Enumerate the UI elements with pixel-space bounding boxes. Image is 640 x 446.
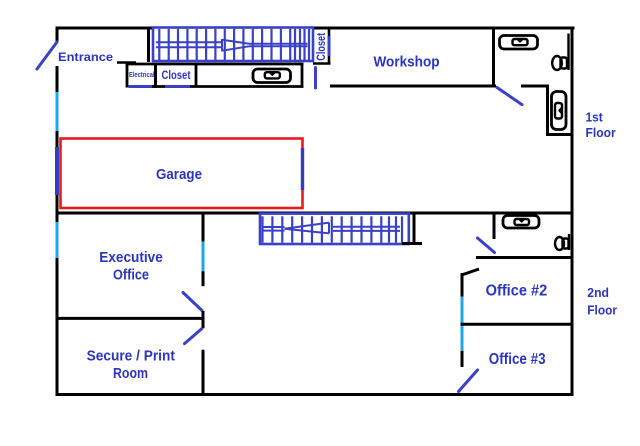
svg-text:Executive: Executive xyxy=(99,250,163,266)
svg-text:Secure / Print: Secure / Print xyxy=(87,349,175,365)
svg-text:1st: 1st xyxy=(586,110,604,125)
svg-text:Electrical: Electrical xyxy=(129,70,155,79)
svg-text:Office: Office xyxy=(113,268,149,284)
svg-text:Floor: Floor xyxy=(587,303,617,318)
svg-text:Workshop: Workshop xyxy=(374,55,440,71)
svg-text:Office #2: Office #2 xyxy=(486,283,548,300)
svg-text:Entrance: Entrance xyxy=(58,50,113,64)
svg-text:2nd: 2nd xyxy=(587,285,609,300)
svg-text:Closet: Closet xyxy=(162,68,191,82)
svg-text:Garage: Garage xyxy=(156,167,202,183)
svg-text:Room: Room xyxy=(113,366,148,382)
svg-text:Closet: Closet xyxy=(314,33,328,61)
svg-text:Floor: Floor xyxy=(586,125,616,140)
svg-text:Office #3: Office #3 xyxy=(489,351,546,368)
